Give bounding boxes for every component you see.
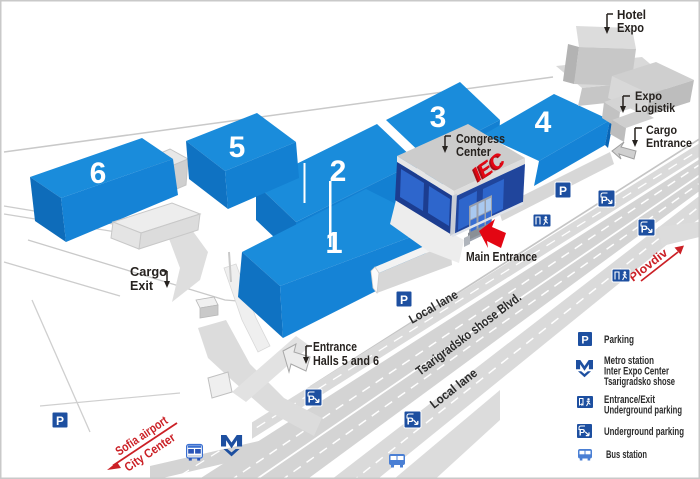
svg-text:P: P bbox=[559, 184, 567, 198]
svg-text:Halls 5 and 6: Halls 5 and 6 bbox=[313, 354, 379, 368]
svg-text:Entrance: Entrance bbox=[646, 138, 692, 150]
svg-text:Hotel: Hotel bbox=[617, 8, 646, 22]
svg-text:P: P bbox=[56, 414, 64, 428]
svg-text:Underground parking: Underground parking bbox=[604, 426, 684, 438]
svg-text:P: P bbox=[641, 224, 648, 236]
svg-text:Cargo: Cargo bbox=[646, 125, 677, 137]
svg-text:4: 4 bbox=[535, 106, 552, 139]
svg-text:Main Entrance: Main Entrance bbox=[466, 249, 537, 264]
svg-text:Bus station: Bus station bbox=[606, 449, 647, 461]
svg-text:Entrance: Entrance bbox=[313, 340, 357, 354]
svg-text:Parking: Parking bbox=[604, 334, 634, 346]
svg-text:Congress: Congress bbox=[456, 132, 505, 146]
svg-text:Cargo: Cargo bbox=[130, 265, 167, 279]
svg-text:Expo: Expo bbox=[635, 91, 662, 103]
svg-text:1: 1 bbox=[325, 225, 342, 260]
svg-text:P: P bbox=[407, 416, 414, 428]
svg-text:Tsarigradsko shose: Tsarigradsko shose bbox=[604, 376, 675, 388]
svg-text:Exit: Exit bbox=[130, 279, 154, 293]
svg-text:P: P bbox=[579, 428, 586, 439]
svg-text:P: P bbox=[581, 335, 588, 347]
svg-text:5: 5 bbox=[229, 131, 246, 164]
svg-text:3: 3 bbox=[430, 101, 447, 134]
svg-text:Underground parking: Underground parking bbox=[604, 405, 682, 417]
svg-text:Logistik: Logistik bbox=[635, 103, 676, 115]
svg-text:Center: Center bbox=[456, 145, 491, 159]
svg-text:Expo: Expo bbox=[617, 21, 644, 35]
svg-text:6: 6 bbox=[90, 157, 107, 190]
svg-text:P: P bbox=[308, 394, 315, 406]
svg-text:P: P bbox=[601, 195, 608, 207]
svg-text:2: 2 bbox=[330, 155, 347, 188]
svg-text:P: P bbox=[400, 293, 408, 307]
